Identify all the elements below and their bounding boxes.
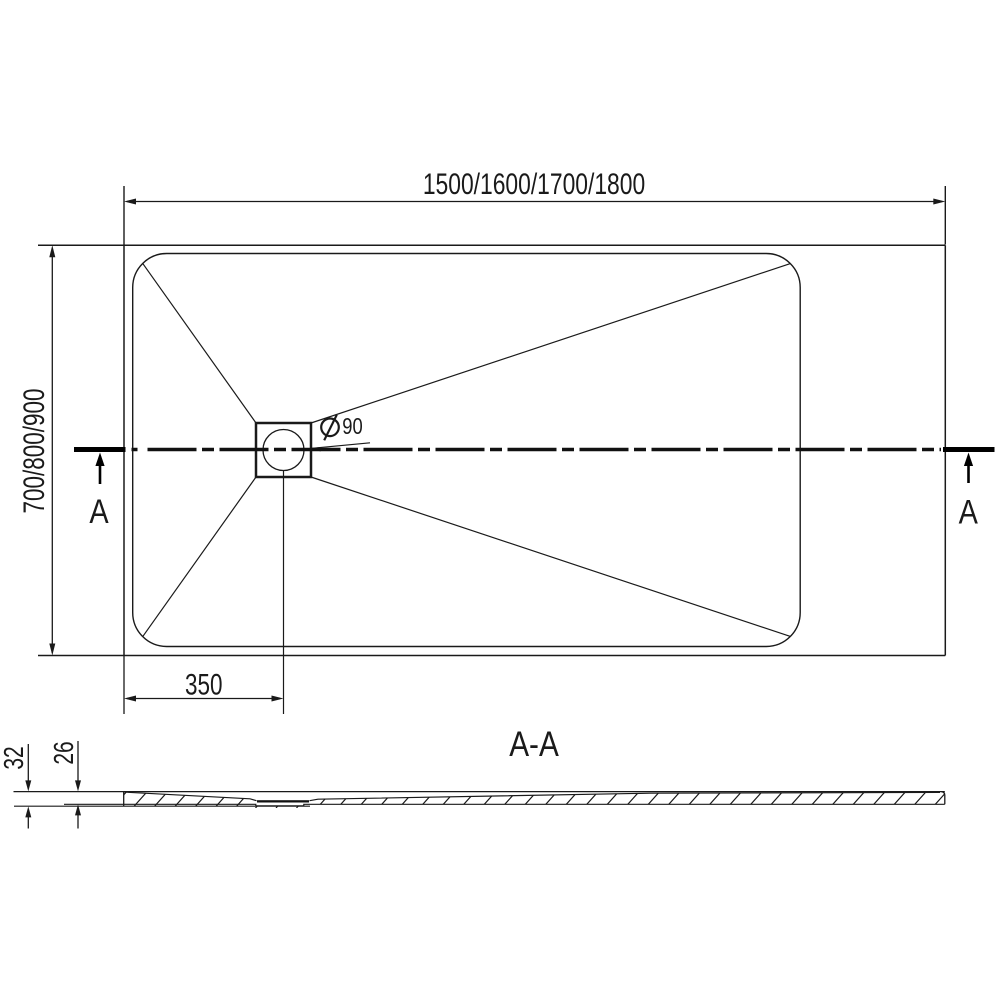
svg-text:A: A [89, 492, 108, 531]
svg-text:700/800/900: 700/800/900 [17, 388, 51, 513]
svg-text:1500/1600/1700/1800: 1500/1600/1700/1800 [423, 167, 645, 201]
svg-text:26: 26 [49, 741, 80, 764]
svg-text:A-A: A-A [509, 725, 559, 764]
svg-text:90: 90 [342, 414, 362, 439]
svg-text:350: 350 [185, 667, 223, 701]
svg-text:A: A [959, 492, 978, 531]
svg-text:32: 32 [0, 746, 30, 769]
